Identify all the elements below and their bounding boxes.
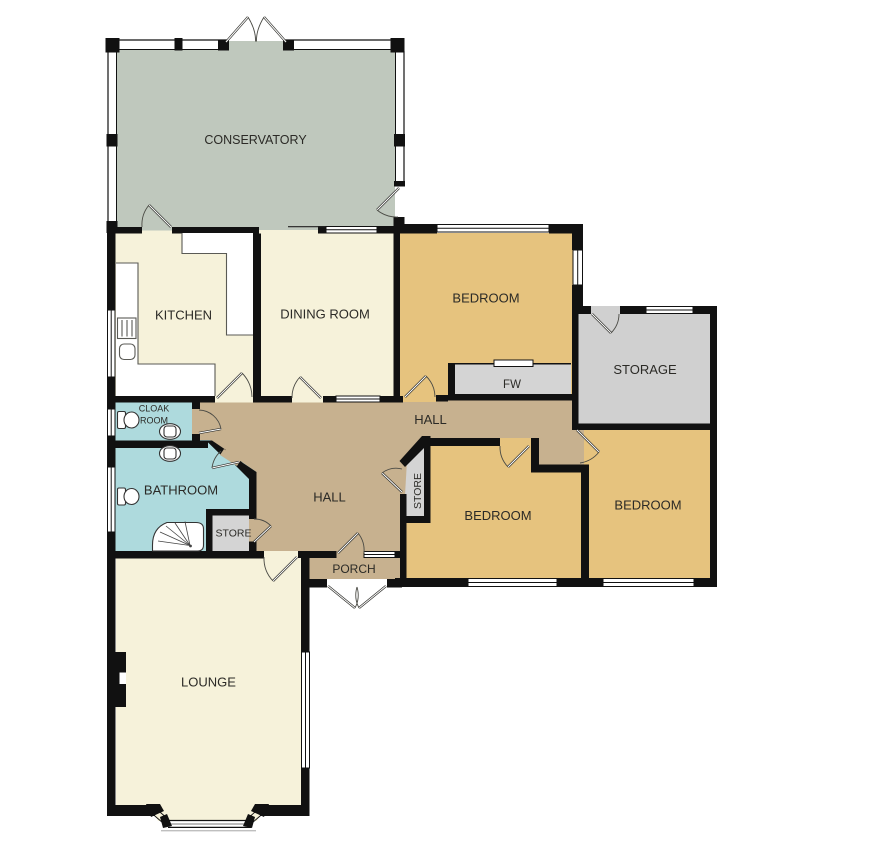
svg-text:CONSERVATORY: CONSERVATORY <box>204 133 307 147</box>
svg-text:BATHROOM: BATHROOM <box>144 483 218 498</box>
svg-text:HALL: HALL <box>313 490 346 505</box>
svg-text:STORE: STORE <box>216 528 252 540</box>
svg-text:BEDROOM: BEDROOM <box>614 498 681 513</box>
svg-text:BEDROOM: BEDROOM <box>452 291 519 306</box>
svg-text:FW: FW <box>503 379 521 391</box>
svg-text:STORE: STORE <box>412 473 424 509</box>
svg-text:HALL: HALL <box>414 412 447 427</box>
svg-text:KITCHEN: KITCHEN <box>155 308 212 323</box>
svg-text:CLOAK: CLOAK <box>139 404 170 414</box>
svg-text:BEDROOM: BEDROOM <box>464 508 531 523</box>
svg-text:LOUNGE: LOUNGE <box>181 675 236 690</box>
svg-text:ROOM: ROOM <box>140 416 168 426</box>
svg-text:STORAGE: STORAGE <box>613 362 677 377</box>
svg-text:DINING ROOM: DINING ROOM <box>280 307 370 322</box>
svg-text:PORCH: PORCH <box>332 562 375 576</box>
